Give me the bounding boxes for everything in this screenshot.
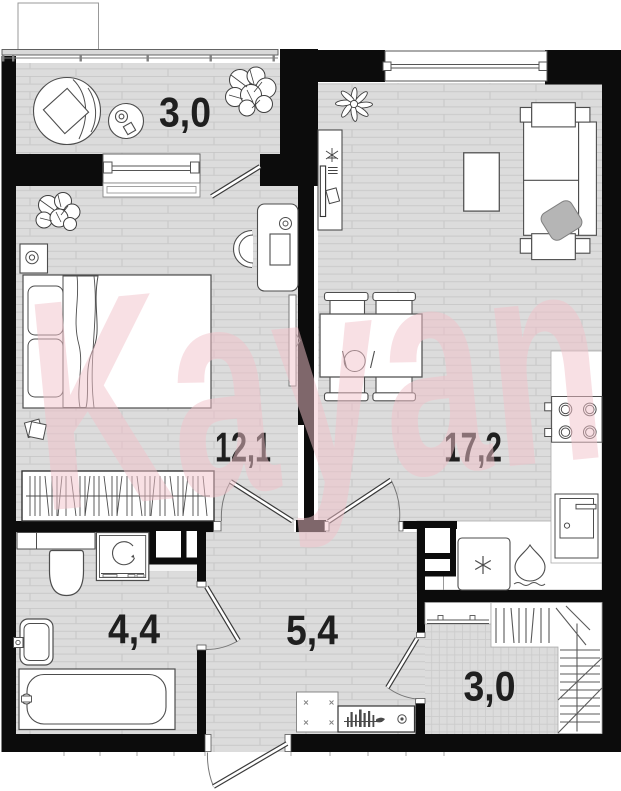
svg-text:Kayan: Kayan: [16, 186, 619, 575]
svg-text:3,0: 3,0: [159, 89, 211, 136]
svg-text:4,4: 4,4: [108, 606, 161, 653]
svg-text:3,0: 3,0: [464, 663, 516, 710]
svg-text:5,4: 5,4: [286, 607, 339, 654]
